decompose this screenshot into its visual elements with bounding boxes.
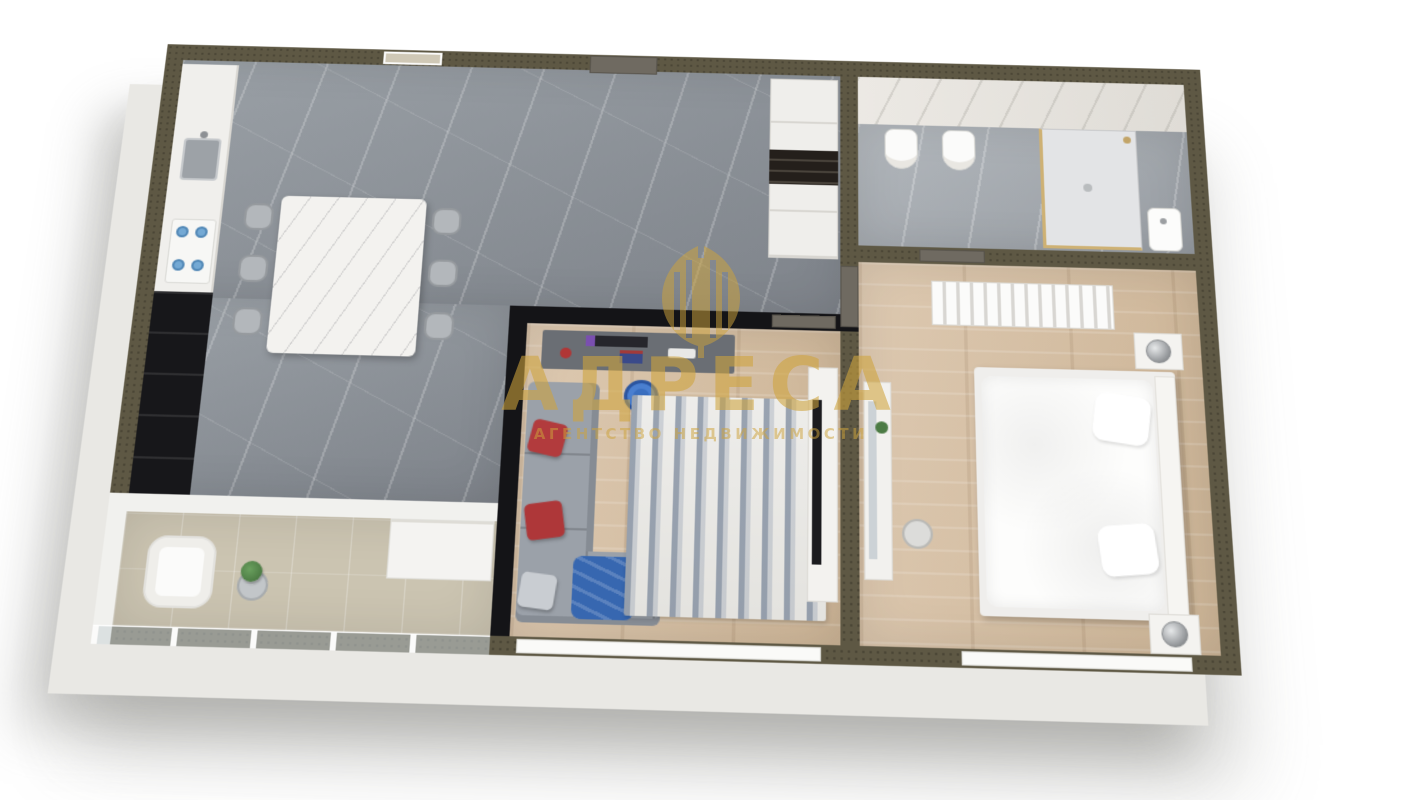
bed-pillow [1091,391,1151,448]
toilet [884,129,918,170]
desk-books [619,353,642,363]
wall-art-frame [383,51,443,65]
washbasin [1147,208,1183,252]
plan-tilt-group [91,44,1242,675]
apartment-3d-floor-plan: АДРЕСА АГЕНТСТВО НЕДВИЖИМОСТИ [0,0,1422,800]
dining-chair [237,254,269,282]
burner [171,259,185,271]
desk-keyboard [668,348,696,358]
tv-screen [812,400,822,565]
burner [176,226,190,238]
bathroom-marble-wall [858,77,1187,132]
corridor-door [840,266,858,328]
floor-plan-scene [200,60,1150,620]
vanity-plant [875,421,888,434]
desk-monitor [586,335,648,347]
storage-chest [386,518,495,581]
dining-chair [243,203,275,230]
kitchen-sink [179,138,222,181]
gray-pillow [516,571,558,611]
radiator-dresser [931,281,1115,330]
armchair [141,535,218,609]
apartment-plan [91,44,1242,675]
dining-chair [231,307,264,335]
shower-head [1123,136,1131,143]
cooktop [164,219,217,285]
burner [191,259,205,271]
burner [195,226,209,238]
dining-chair [423,312,455,341]
area-rug [624,395,827,621]
bed-pillow [1096,523,1161,578]
dining-chair [431,208,462,235]
red-pillow [524,500,566,541]
entrance-door [589,56,657,75]
washbasin-tap [1160,218,1167,224]
living-room-door [772,315,836,329]
shower-drain [1083,184,1092,192]
wardrobe-open-shelves [769,150,838,186]
vanity-chair [902,519,933,550]
dining-table [266,196,427,357]
dining-chair [427,259,458,287]
bedroom-window-sill [962,651,1193,672]
bedroom-door [919,249,985,263]
bidet [942,130,976,171]
living-bedroom-divider-wall [840,331,859,646]
